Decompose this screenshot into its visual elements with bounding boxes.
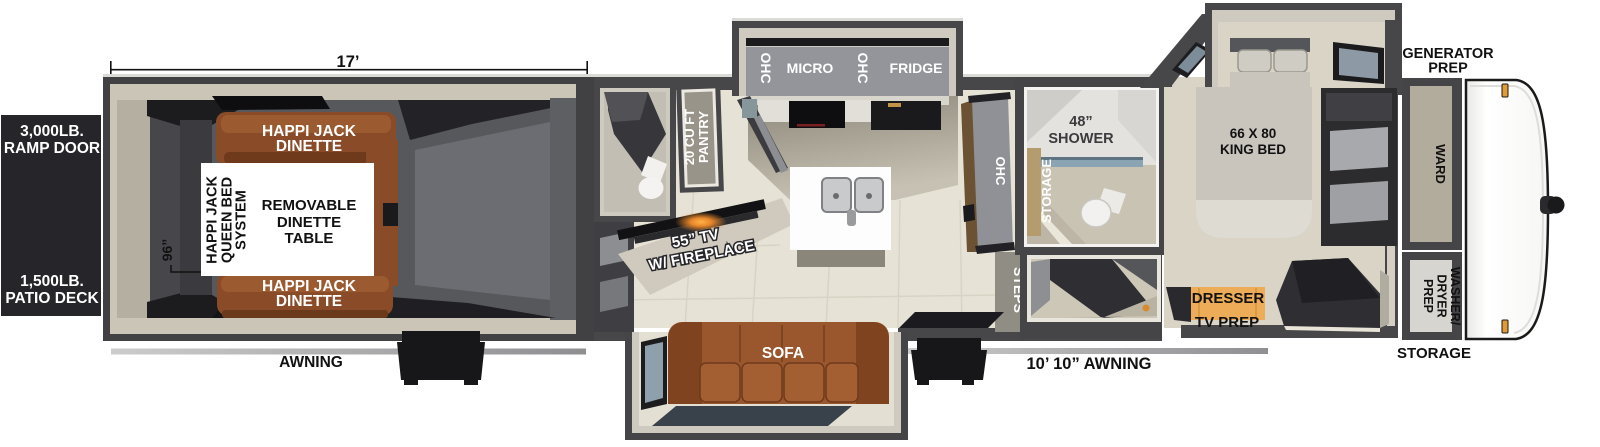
svg-text:SOFA: SOFA [762, 345, 804, 362]
svg-text:HAPPI JACK: HAPPI JACK [205, 176, 221, 264]
svg-text:1,500LB.: 1,500LB. [20, 273, 84, 290]
svg-text:96”: 96” [159, 239, 175, 262]
svg-text:WASHER/: WASHER/ [1448, 267, 1462, 326]
svg-text:TV PREP: TV PREP [1195, 314, 1259, 331]
svg-text:DINETTE: DINETTE [276, 293, 342, 310]
svg-text:66 X 80: 66 X 80 [1230, 126, 1277, 141]
svg-text:17’: 17’ [337, 53, 360, 71]
svg-text:DINETTE: DINETTE [277, 214, 341, 231]
svg-text:STORAGE: STORAGE [1397, 345, 1471, 362]
svg-text:OHC: OHC [855, 52, 871, 83]
svg-text:20 CU FT: 20 CU FT [682, 109, 697, 165]
svg-text:RAMP DOOR: RAMP DOOR [4, 140, 100, 157]
svg-text:PREP: PREP [1421, 279, 1435, 313]
svg-text:WARD: WARD [1433, 144, 1448, 184]
svg-text:STORAGE: STORAGE [1039, 159, 1054, 223]
svg-text:OHC: OHC [993, 157, 1008, 187]
svg-text:OHC: OHC [758, 52, 774, 83]
svg-text:DRESSER: DRESSER [1192, 290, 1265, 307]
svg-text:PATIO DECK: PATIO DECK [5, 290, 99, 307]
svg-text:48”: 48” [1069, 114, 1092, 130]
svg-text:3,000LB.: 3,000LB. [20, 123, 84, 140]
svg-text:MICRO: MICRO [787, 60, 834, 76]
svg-text:REMOVABLE: REMOVABLE [262, 197, 357, 214]
svg-text:SHOWER: SHOWER [1048, 131, 1114, 147]
svg-text:FRIDGE: FRIDGE [890, 60, 943, 76]
svg-text:10’ 10” AWNING: 10’ 10” AWNING [1026, 355, 1151, 373]
svg-text:TABLE: TABLE [285, 230, 334, 247]
svg-text:SYSTEM: SYSTEM [234, 190, 250, 250]
svg-text:KING BED: KING BED [1220, 142, 1286, 157]
svg-text:DRYER: DRYER [1435, 274, 1449, 317]
svg-text:PREP: PREP [1428, 61, 1468, 77]
svg-text:PANTRY: PANTRY [696, 111, 711, 163]
svg-text:AWNING: AWNING [279, 354, 343, 371]
svg-text:DINETTE: DINETTE [276, 138, 342, 155]
